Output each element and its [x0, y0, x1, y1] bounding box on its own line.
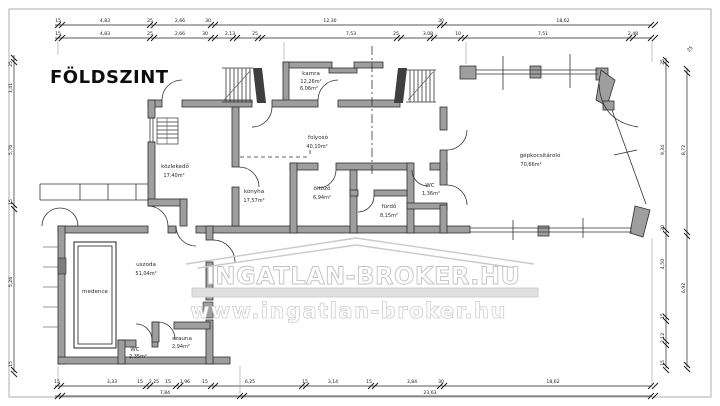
dim-right-inner-4: 15: [660, 313, 666, 319]
dim-top1-7: 18,62: [556, 18, 569, 24]
dim-left-2: 5,76: [8, 145, 14, 155]
dim-bottom1-4: 15: [165, 379, 171, 385]
room-label-wc1: WC: [425, 183, 435, 189]
room-label-wc2: WC: [130, 347, 140, 353]
dim-top1-0: 15: [55, 18, 61, 24]
dim-bottom2-1: 23,63: [423, 390, 436, 396]
stair-wedge-right: [394, 68, 407, 103]
dim-bottom1-12: 30: [438, 379, 444, 385]
dim-bottom2-0: 7,84: [160, 390, 170, 396]
room-area-furdo: 8,15m²: [380, 213, 398, 219]
floor-plan-page: INGATLAN-BROKER.HU www.ingatlan-broker.h…: [0, 0, 720, 406]
room-label-konyha: konyha: [244, 189, 264, 195]
stairs-left: [222, 68, 253, 102]
room-area-garazs: 70,66m²: [520, 162, 541, 168]
dim-right-inner-6: 15: [660, 360, 666, 366]
stairs-interior: [157, 118, 178, 144]
room-area-oltozo: 6,94m²: [313, 195, 331, 201]
room-label-szauna: szauna: [172, 336, 192, 342]
garage-slanted-edge: [612, 110, 646, 204]
dim-bottom1-11: 3,84: [407, 379, 417, 385]
dim-left-0: 25: [8, 61, 14, 67]
dim-bottom1-5: 1,96: [180, 379, 190, 385]
dim-top2-1: 4,83: [100, 31, 110, 37]
dim-top2-5: 2,13: [225, 31, 235, 37]
dim-right-outer-1: 6,92: [681, 283, 687, 293]
dim-top1-3: 2,66: [175, 18, 185, 24]
dim-bottom1-7: 6,25: [245, 379, 255, 385]
room-area-konyha: 17,57m²: [243, 198, 264, 204]
dim-top2-4: 30: [202, 31, 208, 37]
dim-top1-2: 25: [147, 18, 153, 24]
dim-bottom1-9: 3,14: [328, 379, 338, 385]
dim-top2-3: 2,66: [175, 31, 185, 37]
dim-right-inner-5: 2,12: [660, 333, 666, 343]
dim-top2-12: 2,48: [628, 31, 638, 37]
dim-right-inner-3: 4,50: [660, 259, 666, 269]
dim-bottom1-2: 15: [137, 379, 143, 385]
room-label-kamra: kamra: [302, 71, 320, 77]
room-area-wc2: 2,35m²: [129, 354, 147, 360]
stairs-right: [406, 70, 436, 102]
dim-top2-2: 25: [147, 31, 153, 37]
room-area-kamra-2: 6,06m²: [300, 86, 318, 92]
room-area-uszoda: 51,04m²: [135, 271, 156, 277]
dim-left-5: 15: [8, 361, 14, 367]
floor-plan-canvas: INGATLAN-BROKER.HU www.ingatlan-broker.h…: [0, 0, 720, 406]
dim-bottom1-6: 15: [202, 379, 208, 385]
pool-basin-outer: [74, 242, 116, 348]
dim-top2-0: 15: [55, 31, 61, 37]
dim-top2-10: 10: [455, 31, 461, 37]
room-area-kamra-1: 12,26m²: [300, 79, 321, 85]
dim-top2-7: 7,53: [346, 31, 356, 37]
watermark: INGATLAN-BROKER.HU www.ingatlan-broker.h…: [186, 238, 538, 323]
room-label-folyoso: folyosó: [308, 134, 329, 141]
dim-bottom1-10: 15: [366, 379, 372, 385]
watermark-text-url: www.ingatlan-broker.hu: [190, 299, 507, 323]
room-area-kozlekedo: 17,40m²: [163, 173, 184, 179]
dim-top1-5: 12,30: [323, 18, 336, 24]
dim-right-inner-0: 25: [660, 59, 666, 65]
dim-right-outer-0: 8,72: [681, 145, 687, 155]
dim-top1-6: 30: [438, 18, 444, 24]
dim-bottom1-3: 2,25: [149, 379, 159, 385]
dim-bottom1-0: 15: [54, 379, 60, 385]
dim-left-1: 1,41: [8, 83, 14, 93]
room-label-kozlekedo: közlekedő: [161, 164, 189, 170]
room-label-oltozo: öltöző: [314, 186, 332, 192]
room-label-medence: medence: [82, 289, 109, 295]
dim-bottom1-1: 3,33: [107, 379, 117, 385]
dim-right-inner-1: 9,34: [660, 145, 666, 155]
watermark-text-main: INGATLAN-BROKER.HU: [206, 262, 521, 290]
room-label-uszoda: uszoda: [136, 262, 156, 268]
watermark-roof-outer: [186, 238, 534, 264]
room-label-furdo: fürdő: [382, 204, 397, 210]
dim-top2-6: 25: [252, 31, 258, 37]
dim-top1-1: 4,83: [100, 18, 110, 24]
dim-right-inner-2: 30: [660, 225, 666, 231]
pool-door-jamb: [58, 258, 66, 274]
dim-top1-4: 30: [205, 18, 211, 24]
dim-top2-8: 25: [393, 31, 399, 37]
dim-bottom1-13: 18,62: [546, 379, 559, 385]
room-label-garazs: gépkocsitároló: [520, 152, 561, 159]
dim-bottom1-8: 15: [302, 379, 308, 385]
page-title: FÖLDSZINT: [50, 66, 169, 88]
stair-wedge-left: [253, 68, 266, 103]
room-area-wc1: 1,36m²: [422, 191, 440, 197]
room-area-folyoso: 40,10m²: [306, 144, 327, 150]
room-area-szauna: 2,94m²: [172, 344, 190, 350]
dim-top2-11: 7,51: [538, 31, 548, 37]
dim-left-3: 15: [8, 199, 14, 205]
dim-top2-9: 3,08: [423, 31, 433, 37]
dim-left-4: 5,26: [8, 277, 14, 287]
dim-corner: 25: [686, 45, 694, 53]
